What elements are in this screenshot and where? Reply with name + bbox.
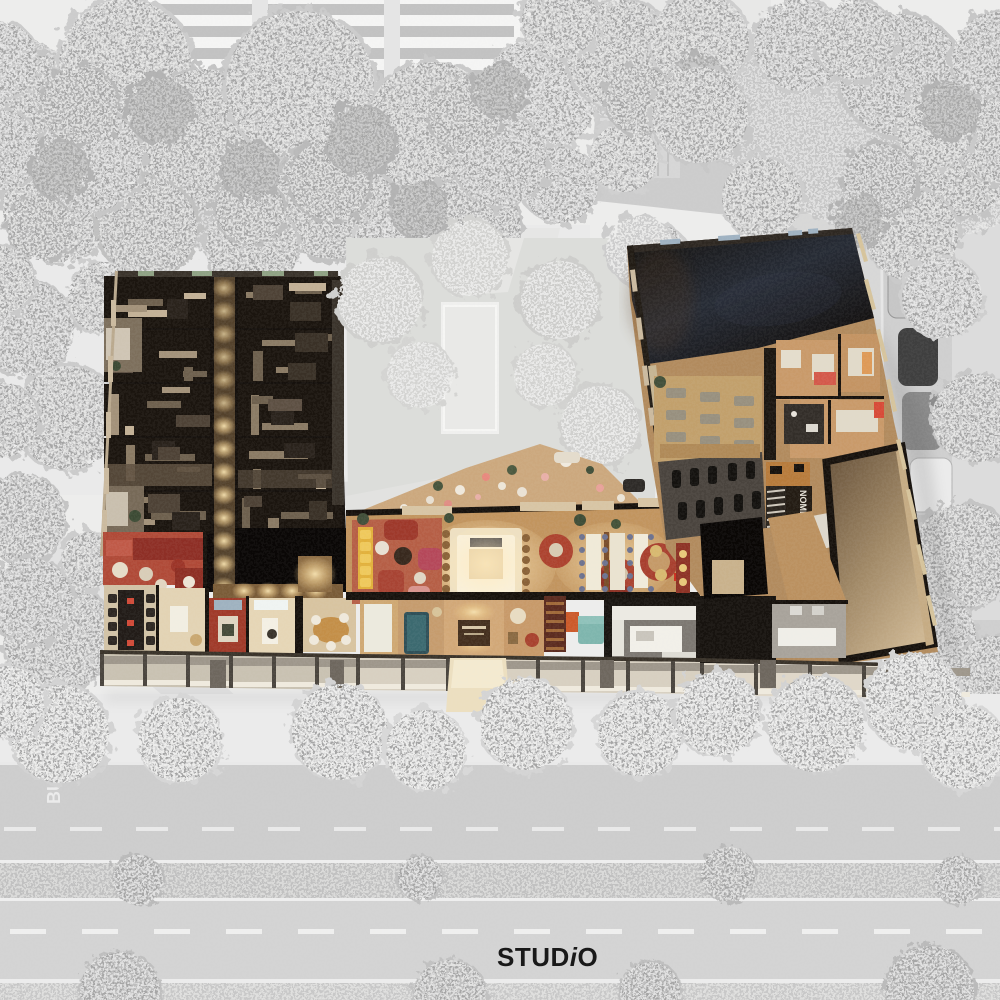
svg-text:STUDiO: STUDiO	[497, 942, 598, 972]
